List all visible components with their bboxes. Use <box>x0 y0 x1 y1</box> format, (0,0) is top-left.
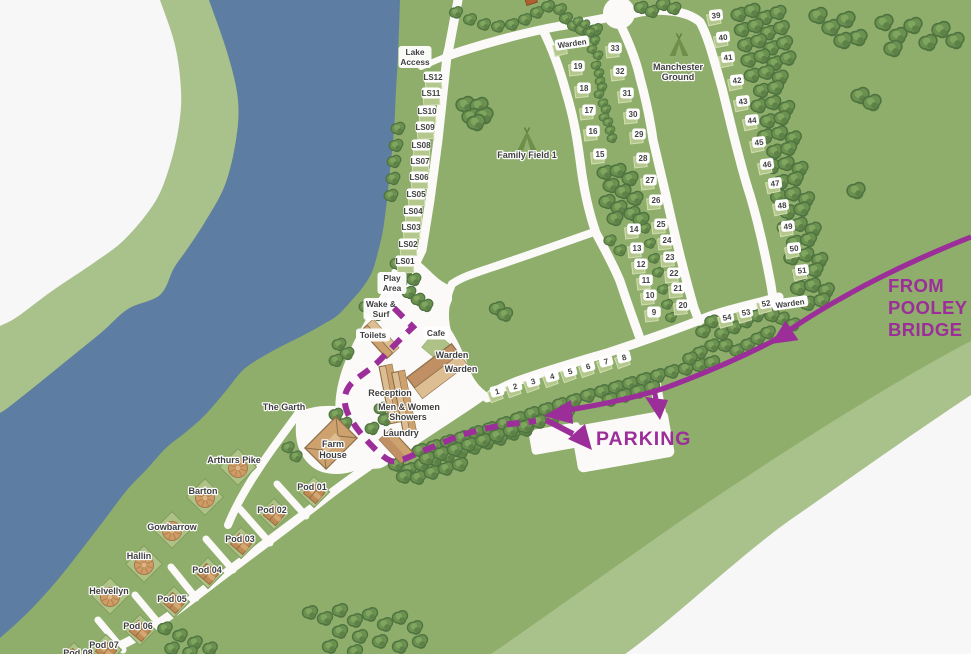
svg-text:31: 31 <box>623 89 632 98</box>
svg-text:26: 26 <box>652 196 661 205</box>
svg-text:LS02: LS02 <box>398 240 418 249</box>
svg-text:The Garth: The Garth <box>263 402 306 412</box>
svg-text:12: 12 <box>637 260 646 269</box>
svg-text:20: 20 <box>679 301 688 310</box>
svg-text:LS05: LS05 <box>406 190 426 199</box>
svg-text:POOLEY: POOLEY <box>888 297 968 318</box>
svg-text:Men & Women: Men & Women <box>378 402 440 412</box>
svg-text:32: 32 <box>616 67 625 76</box>
svg-text:17: 17 <box>585 106 594 115</box>
svg-text:LS01: LS01 <box>395 257 415 266</box>
svg-text:30: 30 <box>629 110 638 119</box>
svg-text:Surf: Surf <box>373 309 390 319</box>
svg-text:48: 48 <box>777 201 787 211</box>
svg-text:Manchester: Manchester <box>653 62 704 72</box>
svg-text:Reception: Reception <box>368 388 412 398</box>
svg-text:Warden: Warden <box>445 364 478 374</box>
svg-text:11: 11 <box>642 276 651 285</box>
svg-text:15: 15 <box>596 150 605 159</box>
svg-text:LS10: LS10 <box>417 107 437 116</box>
svg-text:Helvellyn: Helvellyn <box>89 586 129 596</box>
svg-text:22: 22 <box>670 269 679 278</box>
svg-text:Pod 02: Pod 02 <box>257 505 287 515</box>
svg-text:23: 23 <box>666 253 675 262</box>
svg-text:Warden: Warden <box>436 350 469 360</box>
svg-text:House: House <box>319 450 347 460</box>
svg-text:51: 51 <box>797 266 807 276</box>
svg-text:LS11: LS11 <box>422 89 441 98</box>
svg-text:42: 42 <box>732 76 742 86</box>
svg-text:Pod 04: Pod 04 <box>192 565 222 575</box>
svg-text:Area: Area <box>383 283 402 293</box>
svg-text:16: 16 <box>589 127 598 136</box>
svg-text:Arthurs Pike: Arthurs Pike <box>207 455 261 465</box>
svg-text:46: 46 <box>762 160 772 170</box>
svg-text:Barton: Barton <box>189 486 218 496</box>
svg-text:10: 10 <box>646 291 655 300</box>
svg-text:Pod 07: Pod 07 <box>89 640 119 650</box>
svg-text:18: 18 <box>580 84 589 93</box>
svg-text:LS09: LS09 <box>415 123 435 132</box>
svg-text:Family Field 1: Family Field 1 <box>497 150 557 160</box>
svg-text:13: 13 <box>633 244 642 253</box>
svg-text:FROM: FROM <box>888 275 944 296</box>
svg-text:21: 21 <box>674 284 683 293</box>
svg-text:49: 49 <box>783 222 793 232</box>
svg-text:Showers: Showers <box>389 412 427 422</box>
svg-text:LS03: LS03 <box>401 223 421 232</box>
svg-text:Pod 06: Pod 06 <box>123 621 153 631</box>
svg-text:Laundry: Laundry <box>383 428 419 438</box>
svg-text:40: 40 <box>718 33 728 43</box>
svg-text:43: 43 <box>738 97 748 107</box>
svg-text:Lake: Lake <box>405 47 424 57</box>
svg-text:14: 14 <box>630 225 639 234</box>
svg-text:44: 44 <box>747 116 757 126</box>
svg-text:41: 41 <box>723 53 733 63</box>
svg-text:50: 50 <box>789 244 799 254</box>
svg-text:Play: Play <box>383 273 401 283</box>
svg-text:Pod 08: Pod 08 <box>63 648 93 654</box>
svg-text:Access: Access <box>400 57 430 67</box>
svg-text:Pod 03: Pod 03 <box>225 534 255 544</box>
svg-text:27: 27 <box>646 176 655 185</box>
svg-text:9: 9 <box>652 308 657 317</box>
svg-text:24: 24 <box>663 236 672 245</box>
svg-text:PARKING: PARKING <box>596 428 691 450</box>
svg-text:47: 47 <box>770 179 780 189</box>
svg-text:LS12: LS12 <box>423 73 443 82</box>
svg-text:LS06: LS06 <box>409 173 429 182</box>
svg-text:19: 19 <box>574 62 583 71</box>
svg-text:29: 29 <box>635 130 644 139</box>
svg-text:LS04: LS04 <box>403 207 423 216</box>
svg-text:33: 33 <box>611 44 620 53</box>
svg-text:BRIDGE: BRIDGE <box>888 319 962 340</box>
svg-text:Ground: Ground <box>662 72 695 82</box>
svg-text:LS08: LS08 <box>411 141 431 150</box>
svg-text:Wake &: Wake & <box>366 299 396 309</box>
svg-text:Toilets: Toilets <box>360 330 387 340</box>
svg-text:Farm: Farm <box>322 439 344 449</box>
svg-text:Hallin: Hallin <box>127 551 152 561</box>
svg-text:28: 28 <box>639 154 648 163</box>
svg-text:25: 25 <box>657 220 666 229</box>
svg-text:Gowbarrow: Gowbarrow <box>147 522 198 532</box>
svg-text:45: 45 <box>754 138 764 148</box>
svg-text:Pod 01: Pod 01 <box>297 482 327 492</box>
svg-text:LS07: LS07 <box>410 157 430 166</box>
svg-text:Cafe: Cafe <box>427 328 445 338</box>
svg-text:Pod 05: Pod 05 <box>157 594 187 604</box>
svg-text:39: 39 <box>711 11 721 21</box>
